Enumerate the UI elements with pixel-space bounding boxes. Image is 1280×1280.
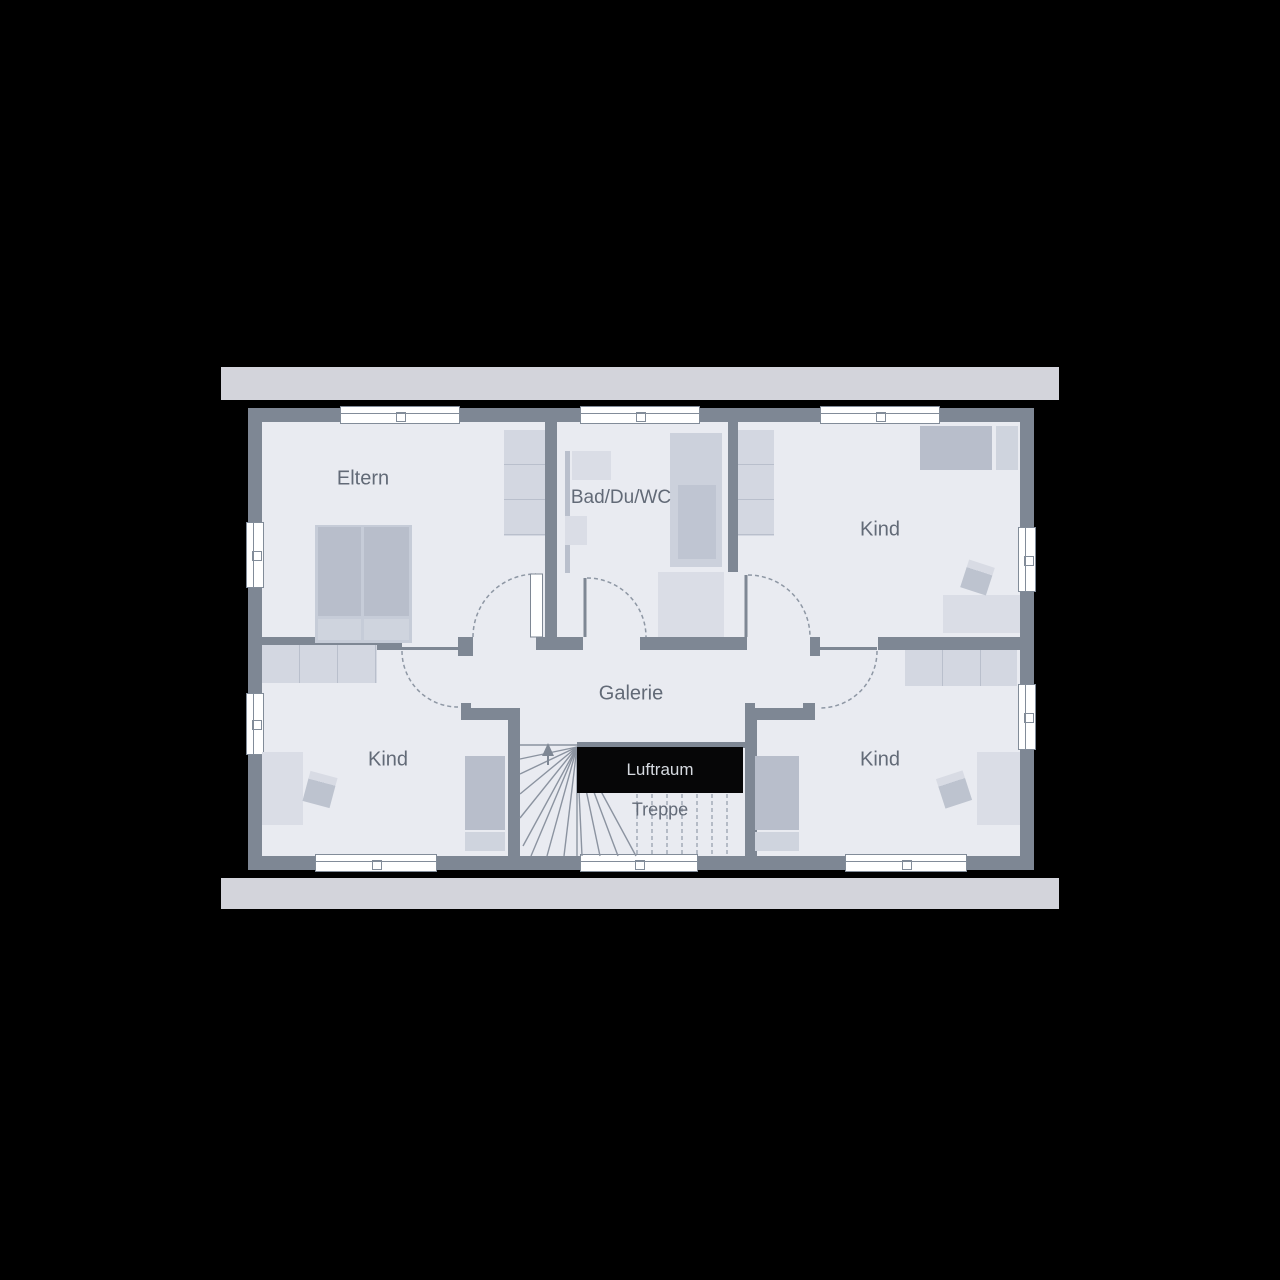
door-leaf-open	[531, 574, 543, 637]
room-label-bath: Bad/Du/WC	[571, 487, 671, 509]
room-label-eltern: Eltern	[337, 468, 389, 491]
luftraum-void: Luftraum	[577, 747, 743, 793]
floor-plan: Luftraum Eltern Bad/Du/WC Kind Galerie K…	[248, 408, 1034, 870]
roof-overhang-top	[221, 367, 1059, 400]
roof-overhang-bottom	[221, 878, 1059, 909]
void-label-luftraum: Luftraum	[626, 760, 693, 780]
room-label-kind-bottom-right: Kind	[860, 749, 900, 772]
stairs-label-treppe: Treppe	[632, 800, 688, 821]
stairs-up-arrow-icon	[542, 743, 554, 765]
room-label-kind-top-right: Kind	[860, 519, 900, 542]
floorplan-canvas: Luftraum Eltern Bad/Du/WC Kind Galerie K…	[0, 0, 1280, 1280]
room-label-kind-bottom-left: Kind	[368, 749, 408, 772]
area-label-galerie: Galerie	[599, 683, 663, 706]
